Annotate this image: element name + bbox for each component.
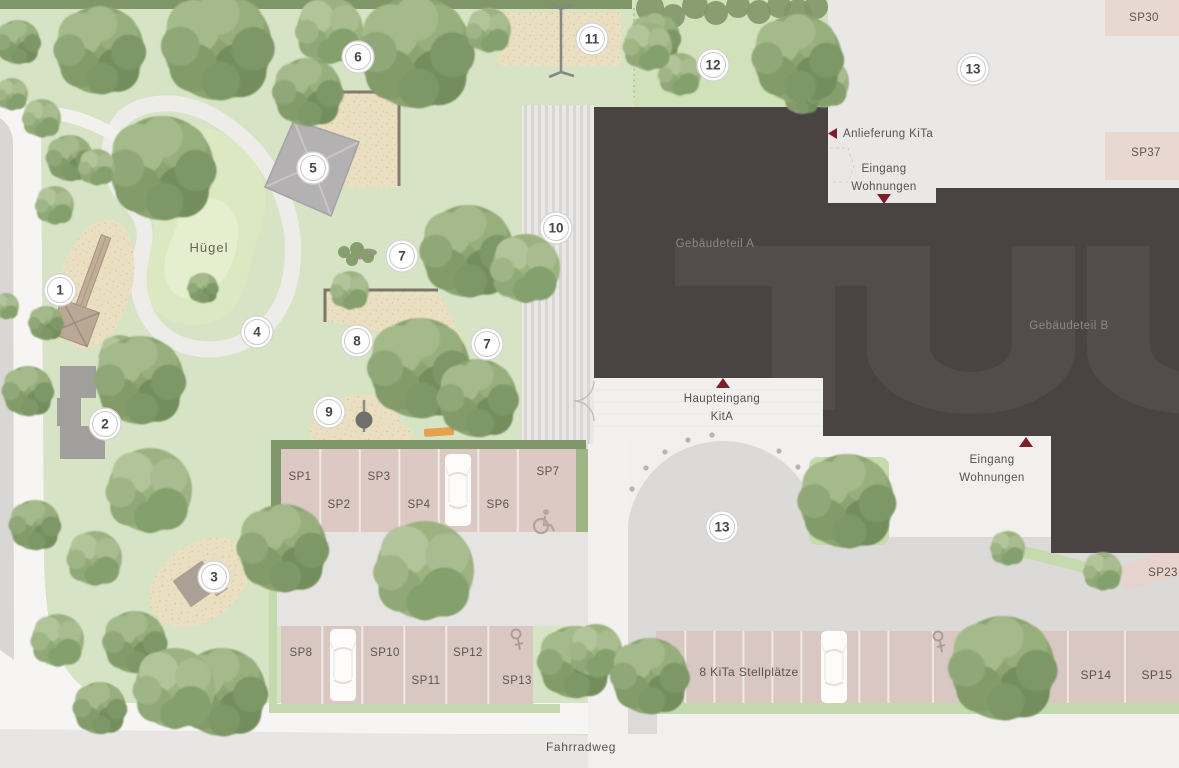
svg-text:Haupteingang: Haupteingang <box>684 393 760 405</box>
svg-text:SP14: SP14 <box>1081 668 1112 682</box>
svg-text:5: 5 <box>309 161 317 176</box>
svg-text:SP13: SP13 <box>502 675 532 687</box>
svg-text:SP10: SP10 <box>370 647 400 659</box>
svg-text:SP7: SP7 <box>537 466 560 478</box>
svg-text:11: 11 <box>585 32 600 47</box>
svg-text:SP37: SP37 <box>1131 147 1161 159</box>
svg-text:2: 2 <box>101 417 109 432</box>
svg-text:8 KiTa Stellplätze: 8 KiTa Stellplätze <box>699 665 798 679</box>
svg-text:1: 1 <box>56 283 64 298</box>
svg-text:10: 10 <box>548 221 563 236</box>
svg-text:9: 9 <box>325 405 333 420</box>
svg-text:6: 6 <box>354 50 362 65</box>
svg-text:Hügel: Hügel <box>190 240 229 255</box>
svg-text:SP15: SP15 <box>1142 668 1173 682</box>
svg-text:Gebäudeteil A: Gebäudeteil A <box>676 238 755 250</box>
svg-text:4: 4 <box>253 325 261 340</box>
svg-text:13: 13 <box>714 520 730 535</box>
svg-text:SP8: SP8 <box>290 647 313 659</box>
svg-text:Eingang: Eingang <box>861 163 906 175</box>
svg-text:3: 3 <box>210 570 218 585</box>
svg-text:Gebäudeteil B: Gebäudeteil B <box>1029 320 1108 332</box>
svg-text:8: 8 <box>353 334 361 349</box>
svg-text:7: 7 <box>398 249 406 264</box>
svg-text:KitA: KitA <box>711 411 734 423</box>
svg-text:SP6: SP6 <box>487 499 510 511</box>
svg-text:13: 13 <box>965 62 981 77</box>
svg-text:SP3: SP3 <box>368 471 391 483</box>
svg-text:Wohnungen: Wohnungen <box>959 472 1024 484</box>
svg-text:SP2: SP2 <box>328 499 351 511</box>
svg-text:SP30: SP30 <box>1129 12 1159 24</box>
svg-text:SP12: SP12 <box>453 647 483 659</box>
svg-text:12: 12 <box>705 58 720 73</box>
svg-text:7: 7 <box>483 337 491 352</box>
svg-text:SP1: SP1 <box>289 471 312 483</box>
svg-text:Eingang: Eingang <box>969 454 1014 466</box>
svg-text:SP11: SP11 <box>412 675 441 687</box>
svg-text:SP23: SP23 <box>1148 567 1178 579</box>
svg-text:Fahrradweg: Fahrradweg <box>546 740 616 754</box>
svg-text:Wohnungen: Wohnungen <box>851 181 916 193</box>
svg-text:Anlieferung KiTa: Anlieferung KiTa <box>843 128 933 140</box>
svg-text:SP4: SP4 <box>408 499 431 511</box>
